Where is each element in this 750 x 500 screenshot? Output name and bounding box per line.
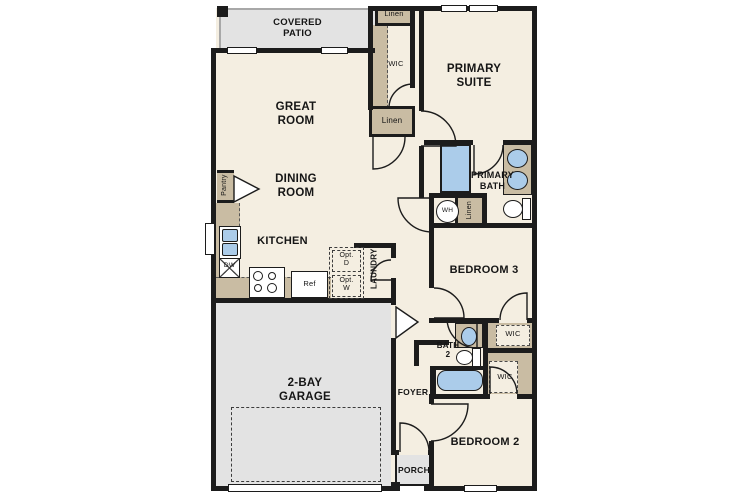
fixture-label-dishwasher: DW	[219, 262, 240, 270]
room-label-great-room: GREATROOM	[246, 101, 346, 128]
closet-label-linen-top: Linen	[377, 10, 411, 19]
door-arc-wic-bedroom3	[500, 293, 527, 320]
floor-plan: COVEREDPATIO GREATROOM DININGROOM KITCHE…	[0, 0, 750, 500]
room-label-porch: PORCH	[396, 465, 432, 475]
fixture-label-opt-washer: Opt.W	[332, 277, 361, 294]
room-label-foyer: FOYER	[393, 387, 433, 397]
closet-label-wic-bedroom3: WIC	[498, 330, 528, 339]
room-label-primary-suite: PRIMARYSUITE	[424, 63, 524, 90]
door-garage-entry	[396, 307, 418, 338]
room-label-bedroom3: BEDROOM 3	[434, 264, 534, 277]
room-label-primary-bath: PRIMARYBATH	[455, 170, 530, 191]
door-arc-wic-top	[389, 84, 413, 108]
room-label-garage: 2-BAYGARAGE	[255, 377, 355, 404]
fixture-label-water-heater: WH	[436, 207, 459, 215]
closet-label-pantry: Pantry	[221, 167, 229, 203]
door-arc-primary-suite	[421, 111, 456, 146]
door-arc-bedroom3	[434, 288, 464, 318]
fixture-label-refrigerator: Ref	[291, 280, 328, 289]
closet-label-linen-bath: Linen	[466, 193, 474, 227]
room-label-kitchen: KITCHEN	[240, 235, 325, 248]
door-arc-front-entry	[400, 423, 429, 452]
room-label-covered-patio: COVEREDPATIO	[245, 17, 350, 39]
door-arc-linen-hall	[373, 137, 405, 169]
room-label-bedroom2: BEDROOM 2	[435, 436, 535, 449]
closet-label-wic-bedroom2: WIC	[490, 373, 520, 382]
fixture-label-opt-dryer: Opt.D	[332, 252, 361, 269]
door-arc-hall	[398, 198, 432, 232]
closet-label-wic-top: WIC	[381, 60, 411, 69]
closet-label-linen-hall: Linen	[372, 116, 412, 125]
room-label-bath2: BATH2	[433, 341, 463, 360]
room-label-dining-room: DININGROOM	[246, 173, 346, 200]
room-label-laundry: LAUNDRY	[369, 241, 378, 297]
